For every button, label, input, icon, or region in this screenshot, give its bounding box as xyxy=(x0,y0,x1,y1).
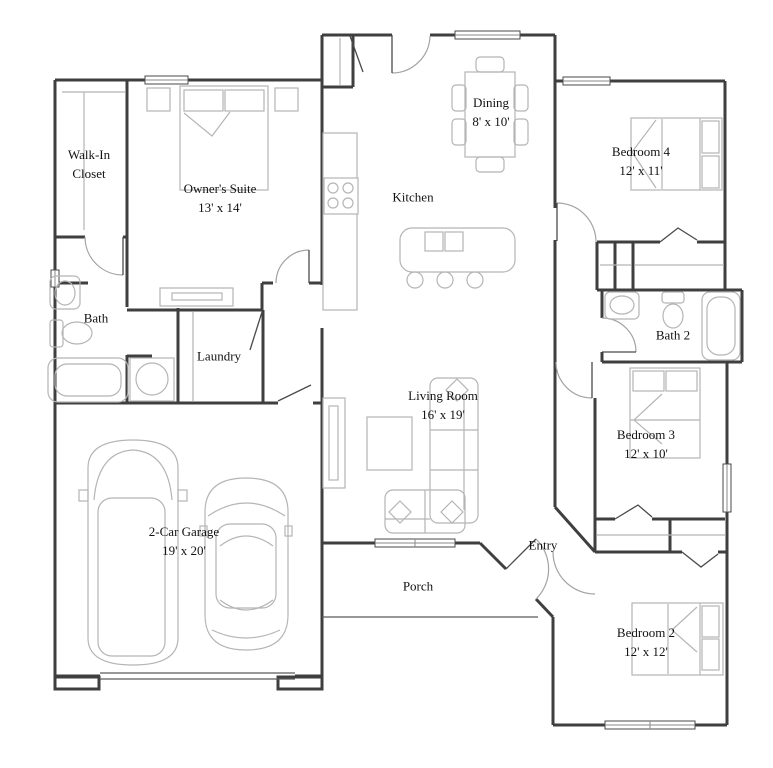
pillow-icon xyxy=(633,371,664,391)
floor-plan: Walk-In Closet Owner's Suite 13' x 14' B… xyxy=(0,0,773,768)
garage-entry-door-leaf xyxy=(278,385,311,401)
bathtub-icon xyxy=(702,292,740,360)
pillow-icon xyxy=(702,121,719,153)
coffee-table-icon xyxy=(367,417,412,470)
room-name: Bath 2 xyxy=(656,328,690,343)
nightstand-icon xyxy=(147,88,170,111)
stool-icon xyxy=(467,272,483,288)
sink-icon xyxy=(610,296,634,314)
pillow-icon xyxy=(225,90,264,111)
island-sink-icon xyxy=(425,232,443,251)
room-label-owners-suite: Owner's Suite 13' x 14' xyxy=(184,179,257,217)
hall-door-arc xyxy=(553,552,595,594)
chair-icon xyxy=(452,85,466,111)
room-label-bath: Bath xyxy=(84,309,109,328)
room-dims: 12' x 12' xyxy=(617,642,675,661)
room-name: Bedroom 4 xyxy=(612,144,670,159)
room-dims: 13' x 14' xyxy=(184,198,257,217)
chair-icon xyxy=(452,119,466,145)
throw-pillow-icon xyxy=(389,501,411,523)
counter-icon xyxy=(323,133,357,310)
bedroom2-closet-bifold xyxy=(682,552,718,567)
room-name: Owner's Suite xyxy=(184,181,257,196)
pillow-icon xyxy=(666,371,697,391)
van-icon xyxy=(94,450,172,500)
room-name: Living Room xyxy=(408,388,478,403)
room-name: Kitchen xyxy=(392,190,433,205)
room-name: Walk-In Closet xyxy=(68,147,110,181)
room-name: Porch xyxy=(403,579,433,594)
garage-door xyxy=(100,673,295,679)
bedroom3-door-arc xyxy=(556,362,592,398)
garage-footing-left xyxy=(55,677,99,689)
room-name: Entry xyxy=(529,538,558,553)
bedroom4-closet-bifold xyxy=(660,228,697,242)
bed-fold-icon xyxy=(184,112,230,136)
stove-icon xyxy=(324,178,358,214)
room-name: 2-Car Garage xyxy=(149,524,219,539)
chair-icon xyxy=(514,85,528,111)
car-icon xyxy=(208,503,285,516)
room-name: Laundry xyxy=(197,349,241,364)
nightstand-icon xyxy=(275,88,298,111)
van-mirror-icon xyxy=(79,490,88,501)
pillow-icon xyxy=(702,639,719,670)
room-label-bedroom3: Bedroom 3 12' x 10' xyxy=(617,425,675,463)
pillow-icon xyxy=(184,90,223,111)
car-icon xyxy=(212,536,280,638)
pillow-icon xyxy=(702,156,719,188)
interior-walls xyxy=(55,35,742,552)
island-sink-icon xyxy=(445,232,463,251)
bed-icon xyxy=(180,86,268,190)
laundry-door-leaf xyxy=(250,312,262,350)
room-label-dining: Dining 8' x 10' xyxy=(472,93,509,131)
water-heater-icon xyxy=(136,363,168,395)
chair-icon xyxy=(476,57,504,72)
room-dims: 8' x 10' xyxy=(472,112,509,131)
room-label-kitchen: Kitchen xyxy=(392,188,433,207)
owners-suite-furniture xyxy=(62,86,298,306)
toilet-icon xyxy=(662,292,684,303)
room-label-bath2: Bath 2 xyxy=(656,326,690,345)
room-label-laundry: Laundry xyxy=(197,347,241,366)
tv-console-icon xyxy=(323,398,345,488)
room-label-entry: Entry xyxy=(529,536,558,555)
stool-icon xyxy=(407,272,423,288)
room-name: Bedroom 3 xyxy=(617,427,675,442)
exterior-walls xyxy=(55,35,742,725)
back-door-arc xyxy=(392,36,430,73)
tv-console-icon xyxy=(329,406,338,480)
bedroom4-door-arc xyxy=(557,203,596,242)
walk-in-closet-door-arc xyxy=(85,237,123,275)
room-label-garage: 2-Car Garage 19' x 20' xyxy=(149,522,219,560)
toilet-icon xyxy=(663,304,683,328)
bathtub-icon xyxy=(55,364,121,396)
room-dims: 12' x 10' xyxy=(617,444,675,463)
chair-icon xyxy=(514,119,528,145)
bath2-door-arc xyxy=(602,318,636,352)
chair-icon xyxy=(476,157,504,172)
room-dims: 19' x 20' xyxy=(149,541,219,560)
room-dims: 16' x 19' xyxy=(408,405,478,424)
owners-suite-door-arc xyxy=(276,250,309,283)
dresser-icon xyxy=(172,293,222,300)
throw-pillow-icon xyxy=(441,501,463,523)
bedroom3-closet-bifold xyxy=(615,505,652,519)
van-mirror-icon xyxy=(178,490,187,501)
room-label-bedroom4: Bedroom 4 12' x 11' xyxy=(612,142,670,180)
room-label-porch: Porch xyxy=(403,577,433,596)
bath-fixtures xyxy=(48,276,193,402)
pillow-icon xyxy=(702,606,719,637)
room-name: Dining xyxy=(473,95,509,110)
kitchen-island-icon xyxy=(400,228,515,272)
bathtub-icon xyxy=(707,297,735,355)
room-label-living-room: Living Room 16' x 19' xyxy=(408,386,478,424)
room-dims: 12' x 11' xyxy=(612,161,670,180)
sink-icon xyxy=(55,281,75,305)
room-label-bedroom2: Bedroom 2 12' x 12' xyxy=(617,623,675,661)
room-name: Bath xyxy=(84,311,109,326)
room-label-walk-in-closet: Walk-In Closet xyxy=(50,145,128,183)
room-name: Bedroom 2 xyxy=(617,625,675,640)
stool-icon xyxy=(437,272,453,288)
